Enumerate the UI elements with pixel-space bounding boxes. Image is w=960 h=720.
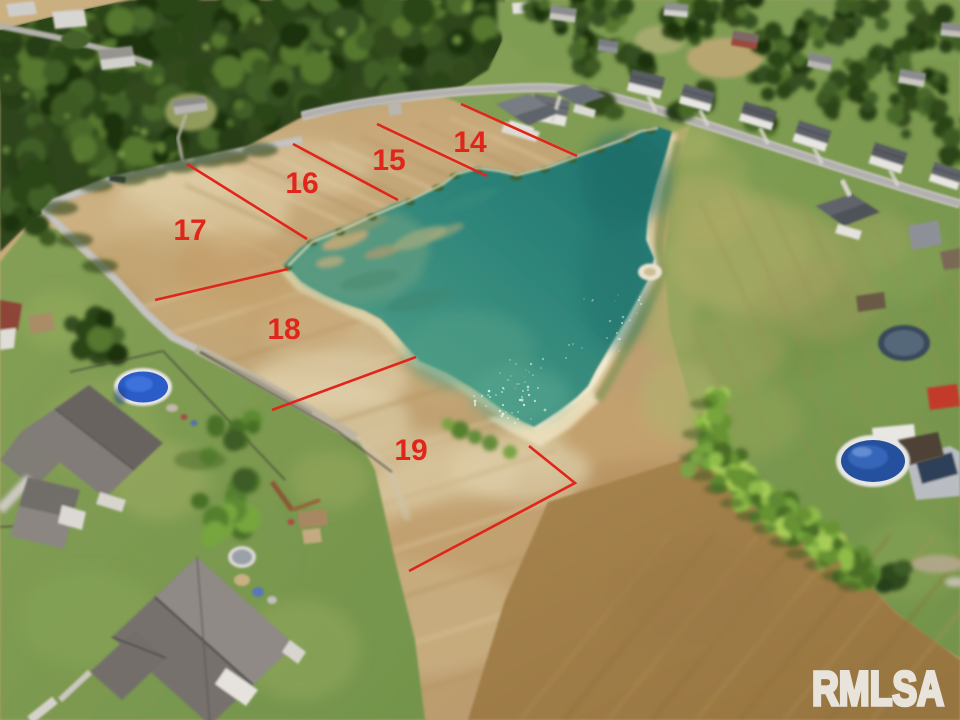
svg-text:18: 18: [267, 313, 300, 346]
svg-text:17: 17: [173, 214, 206, 247]
svg-text:RMLSA: RMLSA: [812, 663, 944, 716]
svg-text:15: 15: [372, 144, 405, 177]
svg-text:14: 14: [453, 126, 487, 159]
svg-text:19: 19: [394, 434, 427, 467]
svg-text:16: 16: [285, 167, 318, 200]
